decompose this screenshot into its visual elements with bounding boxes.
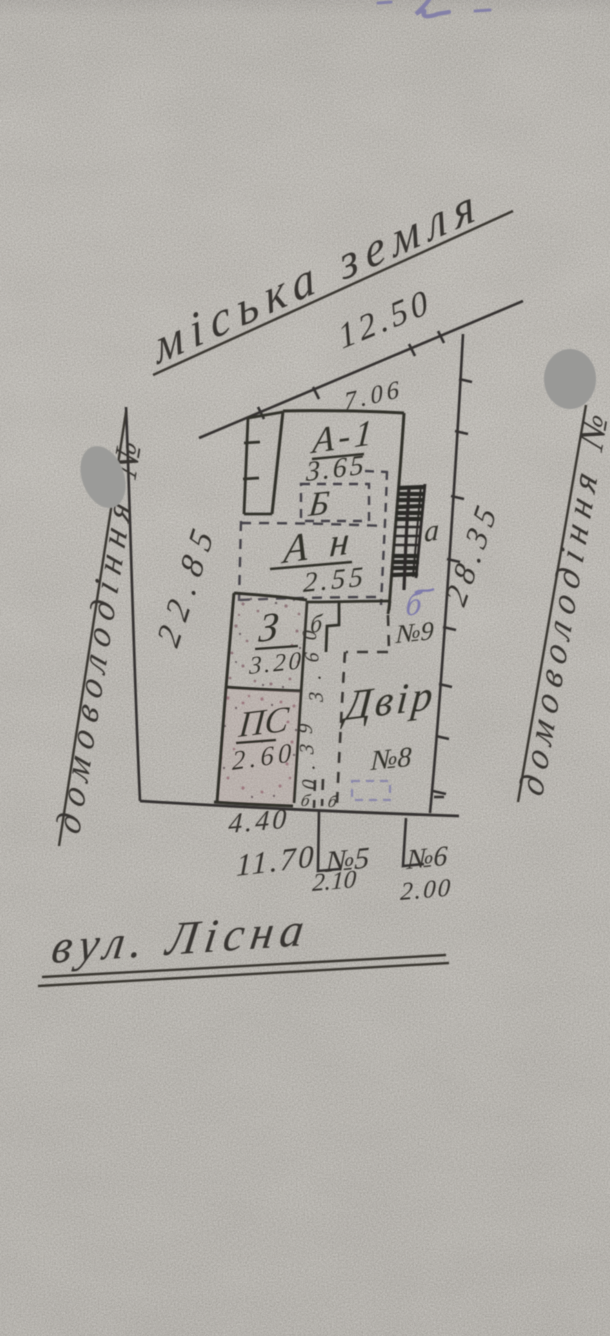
svg-text:№9: №9 bbox=[395, 616, 434, 649]
svg-text:№6: №6 bbox=[406, 841, 448, 876]
svg-text:Б: Б bbox=[306, 484, 331, 524]
svg-text:4.40: 4.40 bbox=[228, 804, 287, 840]
svg-text:а: а bbox=[424, 512, 440, 549]
svg-text:2.00: 2.00 bbox=[400, 875, 452, 906]
svg-text:З: З bbox=[257, 603, 280, 651]
svg-text:№8: №8 bbox=[370, 742, 412, 777]
svg-text:2.10: 2.10 bbox=[312, 866, 358, 897]
svg-text:3.20: 3.20 bbox=[248, 647, 302, 680]
svg-text:2.55: 2.55 bbox=[303, 562, 364, 599]
